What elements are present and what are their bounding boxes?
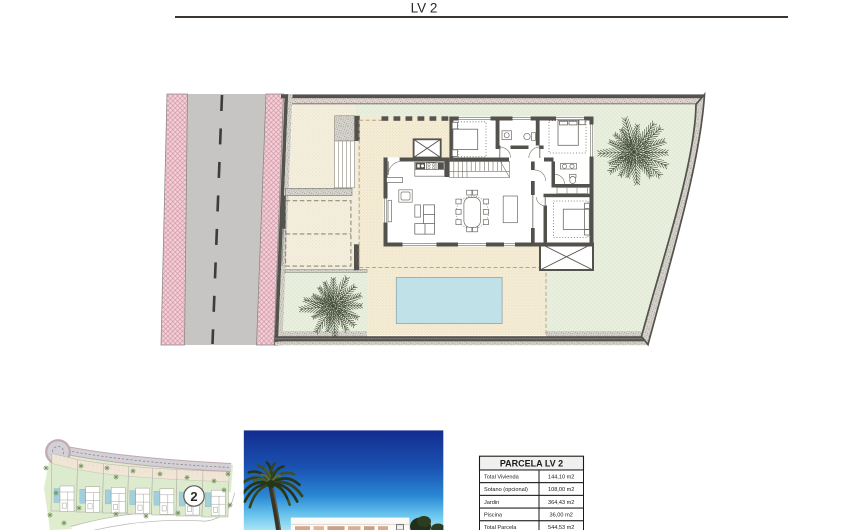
svg-text:Piscina: Piscina xyxy=(484,512,503,518)
svg-text:144,10 m2: 144,10 m2 xyxy=(548,474,574,480)
svg-text:544,53 m2: 544,53 m2 xyxy=(548,525,574,530)
svg-text:Total Parcela: Total Parcela xyxy=(484,525,517,530)
svg-text:Total Vivienda: Total Vivienda xyxy=(484,474,520,480)
svg-text:36,00 m2: 36,00 m2 xyxy=(550,512,573,518)
svg-text:Jardin: Jardin xyxy=(484,500,499,506)
svg-text:Sotano (opcional): Sotano (opcional) xyxy=(484,487,528,493)
svg-text:PARCELA LV 2: PARCELA LV 2 xyxy=(500,458,563,468)
svg-text:2: 2 xyxy=(190,489,197,504)
svg-text:364,43 m2: 364,43 m2 xyxy=(548,500,574,506)
svg-text:108,00 m2: 108,00 m2 xyxy=(548,487,574,493)
svg-text:LV 2: LV 2 xyxy=(411,1,438,16)
